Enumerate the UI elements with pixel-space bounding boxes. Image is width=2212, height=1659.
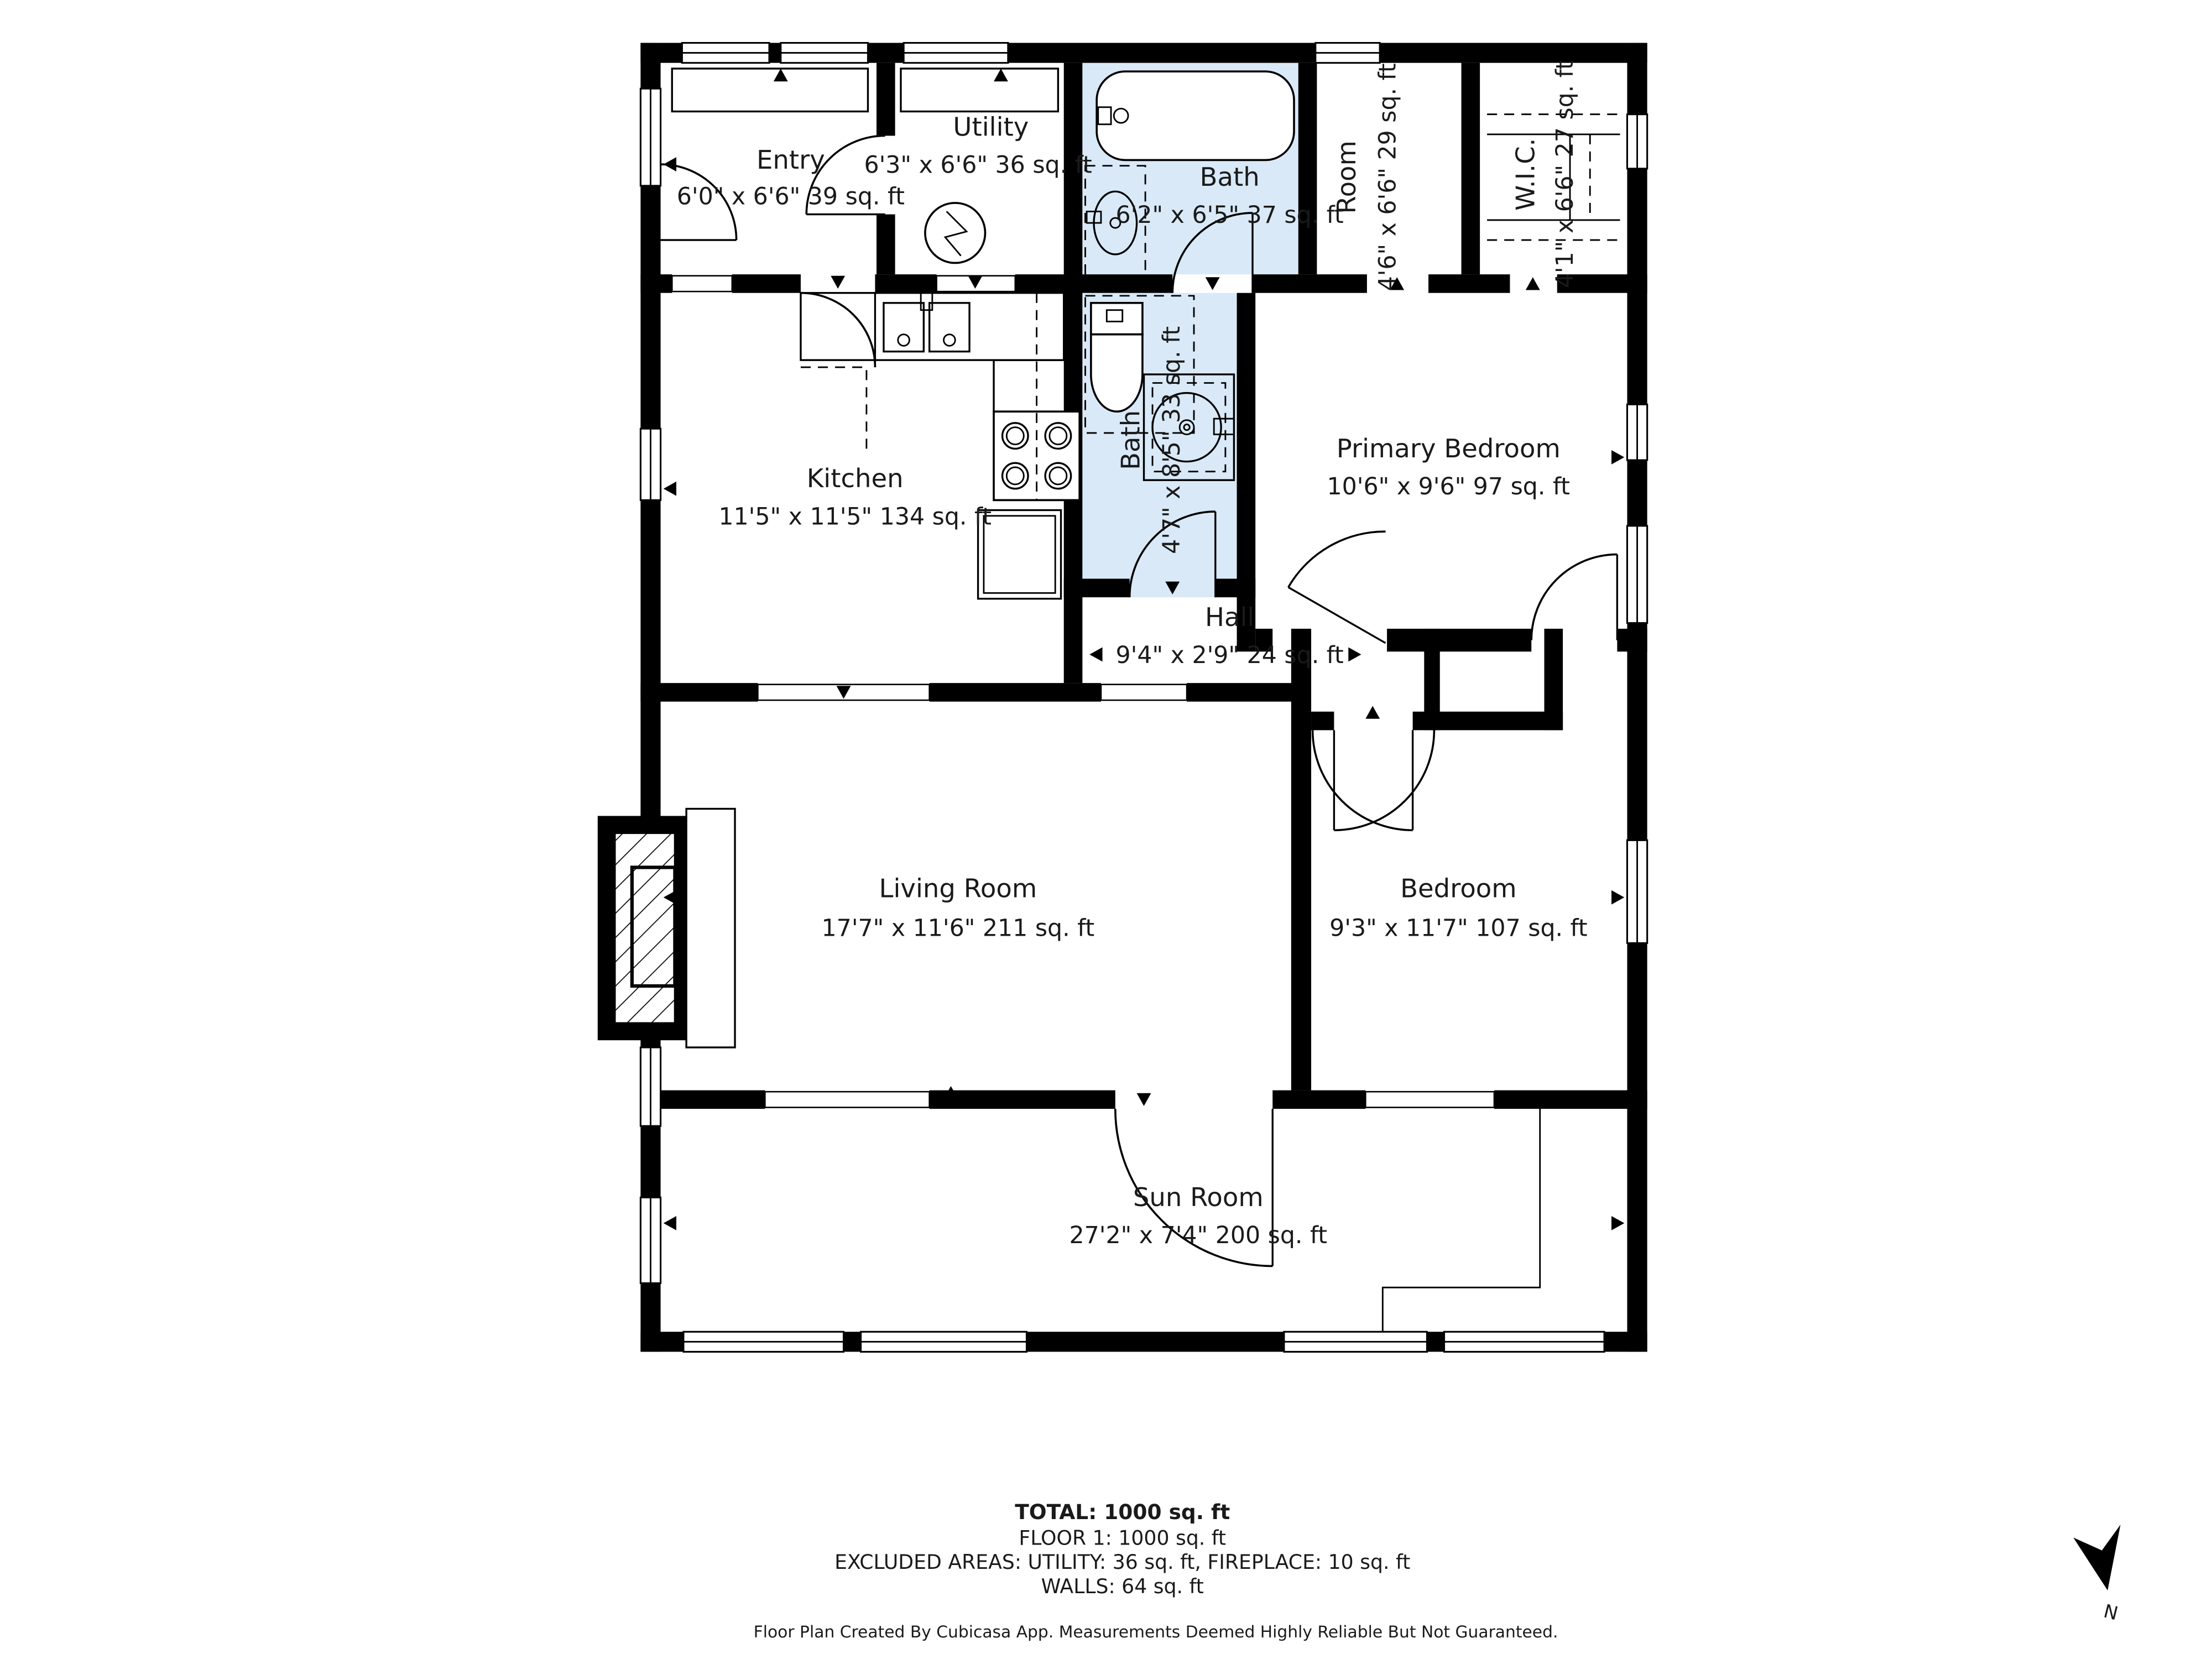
room-label-entry: Entry: [757, 145, 825, 175]
room-label-room: Room: [1332, 140, 1361, 213]
footer-excluded: EXCLUDED AREAS: UTILITY: 36 sq. ft, FIRE…: [834, 1550, 1410, 1574]
window: [1627, 404, 1647, 460]
window: [781, 43, 868, 63]
room-label-bath-top: Bath: [1200, 162, 1260, 192]
room-dims-sunroom: 27'2" x 7'4" 200 sq. ft: [1070, 1222, 1328, 1249]
footer-disclaimer: Floor Plan Created By Cubicasa App. Meas…: [754, 1623, 1558, 1642]
kitchen-door: [801, 293, 875, 367]
window: [640, 1197, 660, 1283]
cased-opening: [672, 276, 732, 291]
room-label-utility: Utility: [953, 112, 1029, 142]
window: [640, 1047, 660, 1126]
room-dims-entry: 6'0" x 6'6" 39 sq. ft: [677, 183, 905, 211]
kitchen-cabinet-dash: [801, 367, 867, 455]
cased-opening: [1101, 685, 1187, 700]
window: [682, 43, 769, 63]
floor-plan-page: Entry 6'0" x 6'6" 39 sq. ft Utility 6'3"…: [0, 0, 2212, 1659]
entry-closet: [672, 69, 868, 112]
footer-total: TOTAL: 1000 sq. ft: [1015, 1500, 1230, 1524]
room-dims-primary: 10'6" x 9'6" 97 sq. ft: [1327, 473, 1570, 500]
window: [1627, 526, 1647, 623]
utility-closet: [901, 69, 1058, 112]
floor-plan-canvas: Entry 6'0" x 6'6" 39 sq. ft Utility 6'3"…: [0, 0, 2212, 1659]
room-label-hall: Hall: [1205, 602, 1254, 632]
primary-bedroom-door: [1288, 531, 1386, 643]
window: [640, 88, 660, 186]
window: [1316, 43, 1380, 63]
room-dims-room: 4'6" x 6'6" 29 sq. ft: [1374, 63, 1402, 291]
room-label-bath-mid: Bath: [1116, 410, 1146, 470]
footer-floor: FLOOR 1: 1000 sq. ft: [1019, 1526, 1226, 1550]
window: [1627, 114, 1647, 169]
room-label-sunroom: Sun Room: [1133, 1182, 1264, 1212]
room-dims-bath-mid: 4'7" x 8'5" 33 sq. ft: [1158, 326, 1186, 554]
primary-closet-door: [1531, 555, 1617, 640]
room-dims-kitchen: 11'5" x 11'5" 134 sq. ft: [718, 503, 992, 530]
sunroom-platform: [1383, 1109, 1540, 1332]
room-label-kitchen: Kitchen: [807, 463, 904, 493]
bedroom-door: [1334, 730, 1434, 830]
bedroom-door-2: [1313, 730, 1413, 830]
north-arrow-icon: N: [2073, 1525, 2120, 1624]
room-dims-bath-top: 6'2" x 6'5" 37 sq. ft: [1116, 201, 1344, 229]
kitchen-sink-icon: [801, 290, 1064, 361]
window: [1284, 1332, 1427, 1352]
window: [1444, 1332, 1605, 1352]
room-label-living: Living Room: [879, 874, 1037, 904]
north-label: N: [2101, 1600, 2120, 1625]
room-dims-living: 17'7" x 11'6" 211 sq. ft: [822, 915, 1095, 942]
window: [861, 1332, 1027, 1352]
cased-opening: [1365, 1092, 1494, 1107]
room-dims-wic: 4'1" x 6'6" 27 sq. ft: [1551, 60, 1579, 288]
room-dims-hall: 9'4" x 2'9" 24 sq. ft: [1116, 641, 1344, 669]
room-label-wic: W.I.C.: [1510, 138, 1540, 211]
window: [684, 1332, 844, 1352]
room-label-primary: Primary Bedroom: [1337, 434, 1561, 463]
window: [640, 429, 660, 500]
footer-summary: TOTAL: 1000 sq. ft FLOOR 1: 1000 sq. ft …: [754, 1500, 1558, 1642]
bathtub-icon: [1097, 71, 1294, 160]
room-dims-bedroom: 9'3" x 11'7" 107 sq. ft: [1329, 915, 1588, 942]
window: [1627, 840, 1647, 943]
water-heater-icon: [925, 203, 985, 263]
window: [904, 43, 1008, 63]
footer-walls: WALLS: 64 sq. ft: [1041, 1574, 1204, 1598]
fireplace-icon: [598, 809, 735, 1048]
room-label-bedroom: Bedroom: [1400, 874, 1516, 904]
room-dims-utility: 6'3" x 6'6" 36 sq. ft: [864, 152, 1092, 179]
cased-opening: [765, 1092, 929, 1107]
